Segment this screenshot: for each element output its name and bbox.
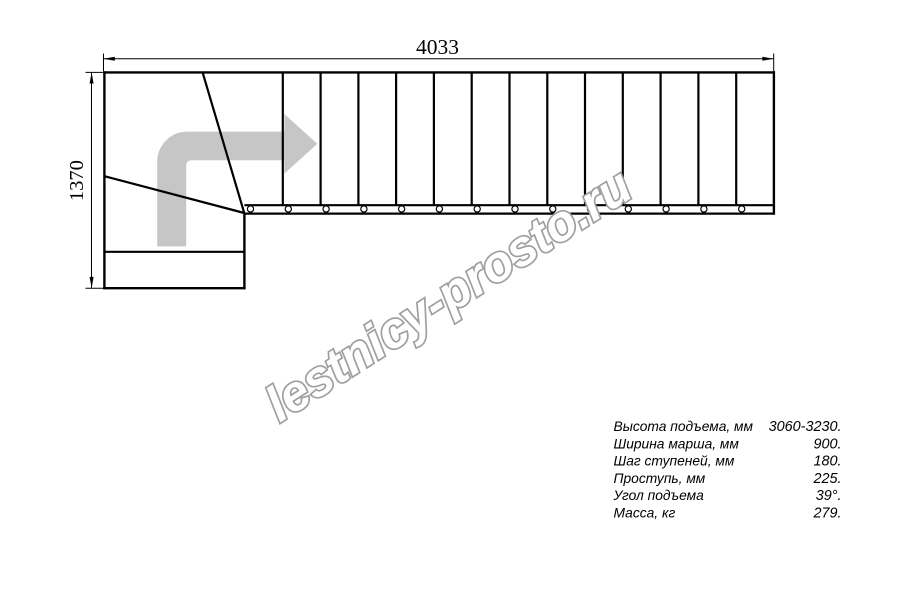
svg-text:4033: 4033: [416, 35, 459, 59]
svg-text:Высота подъема, мм: Высота подъема, мм: [614, 419, 754, 434]
svg-text:180.: 180.: [813, 454, 841, 470]
svg-text:225.: 225.: [812, 471, 841, 487]
svg-text:Проступь, мм: Проступь, мм: [614, 471, 706, 486]
svg-text:900.: 900.: [813, 436, 841, 452]
svg-text:Масса, кг: Масса, кг: [614, 506, 676, 521]
svg-text:Ширина марша, мм: Ширина марша, мм: [614, 436, 740, 451]
svg-text:Шаг ступеней, мм: Шаг ступеней, мм: [614, 454, 735, 469]
svg-text:1370: 1370: [66, 160, 88, 201]
svg-text:3060-3230.: 3060-3230.: [769, 419, 842, 435]
svg-text:39°.: 39°.: [816, 488, 842, 504]
svg-text:279.: 279.: [812, 506, 841, 522]
svg-text:Угол подъема: Угол подъема: [613, 488, 705, 503]
